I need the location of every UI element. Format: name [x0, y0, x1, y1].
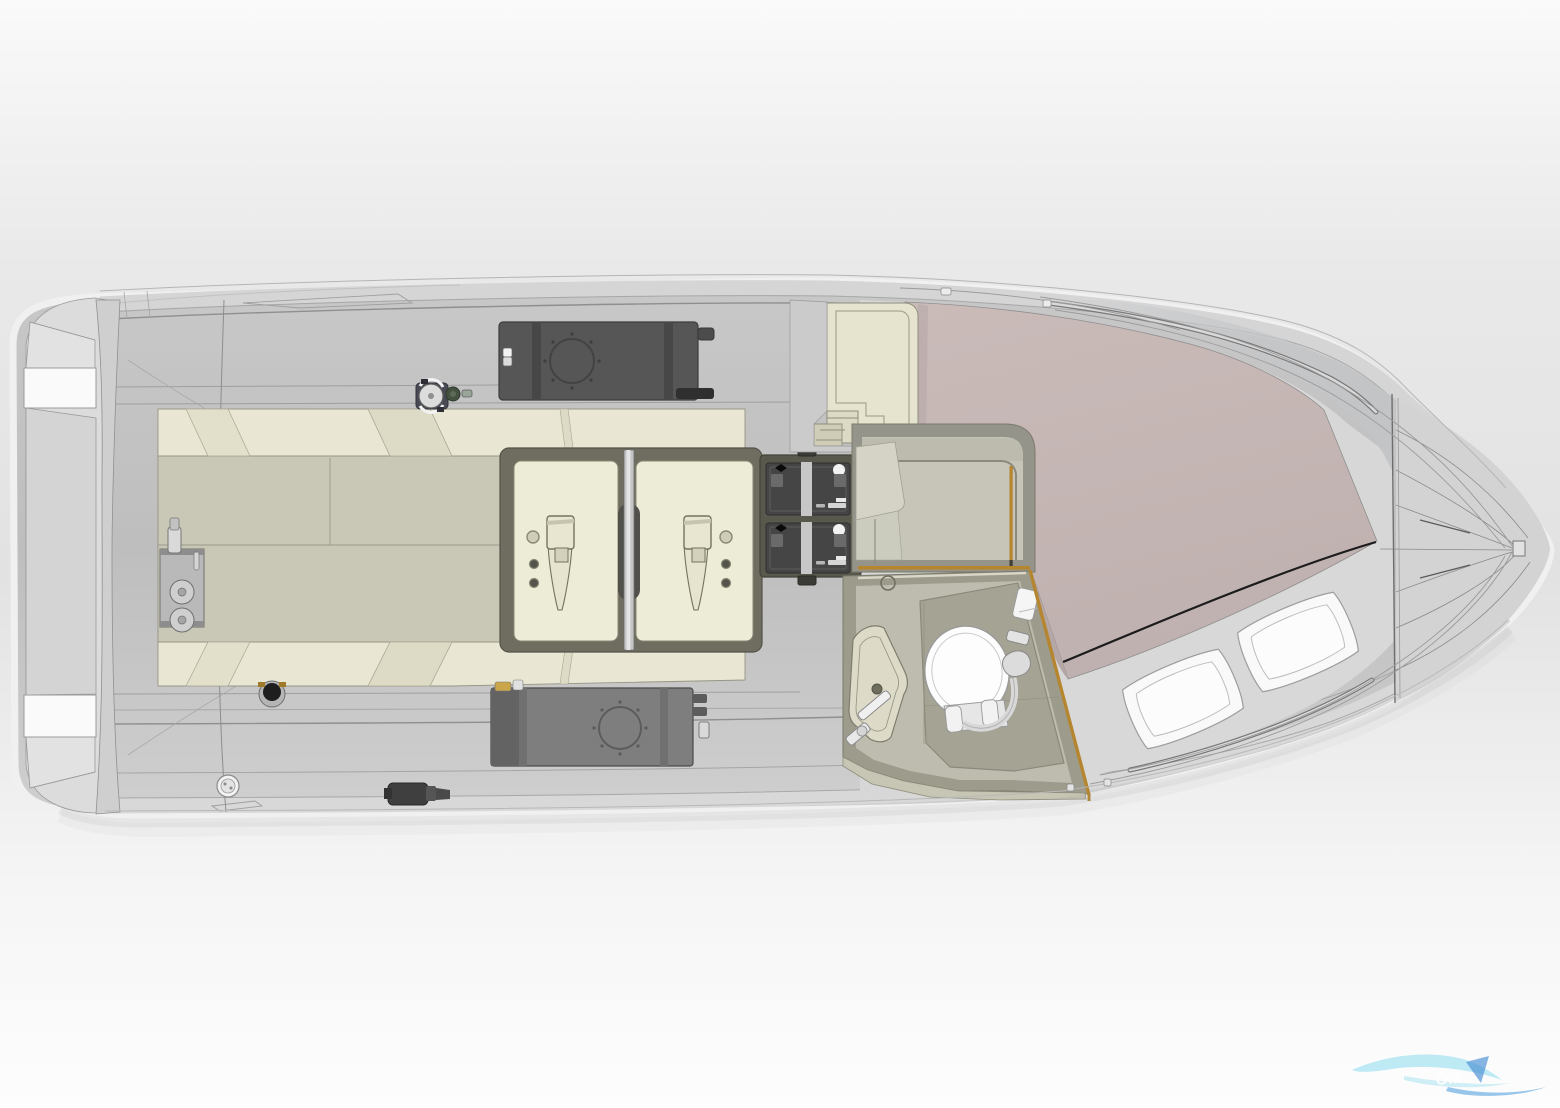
svg-text:OM: OM [1435, 1070, 1462, 1089]
